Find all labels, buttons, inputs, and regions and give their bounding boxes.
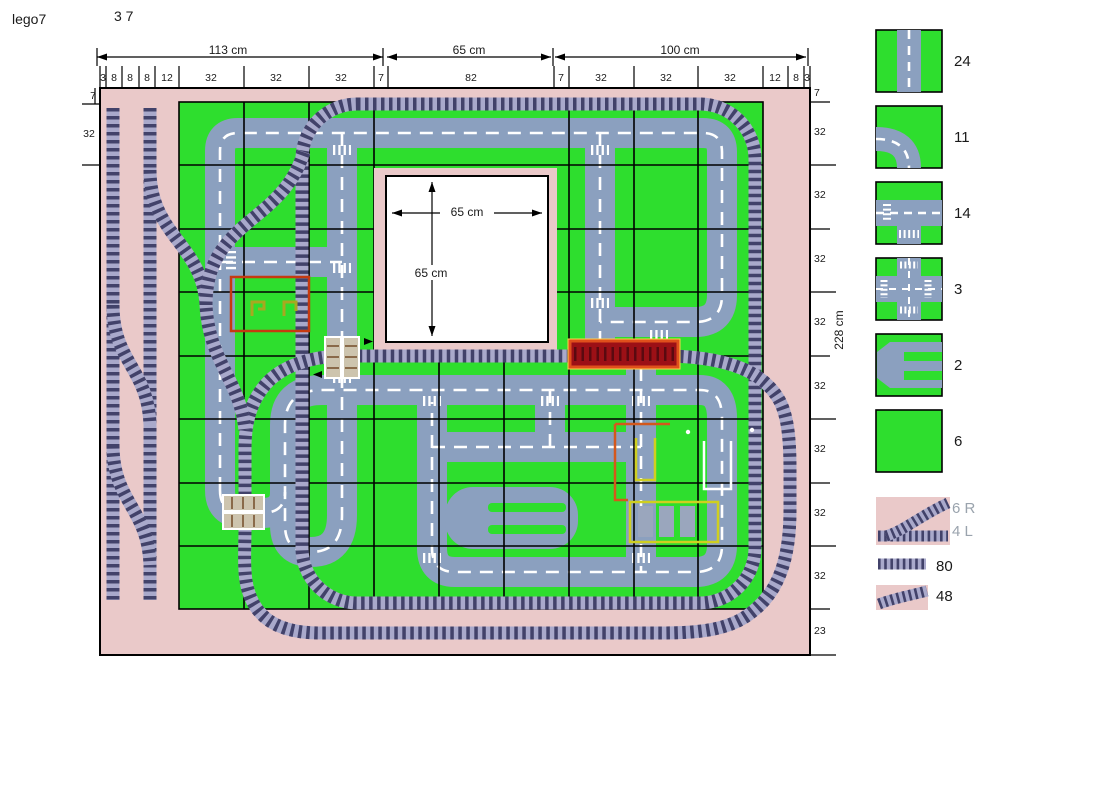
right-tick: 32 [814,507,826,519]
right-tick: 32 [814,126,826,138]
top-tick: 32 [724,72,736,84]
legend-road-straight-icon [876,30,942,92]
legend-count-switch-left: 4 L [952,523,973,540]
legend: 24 11 14 3 [876,30,976,610]
top-tick: 8 [111,72,117,84]
dim-square-width: 65 cm [451,205,484,219]
legend-road-parking-icon [876,334,942,396]
parking-lot-large [445,487,578,549]
top-tick: 7 [558,72,564,84]
legend-road-tjunction-icon [876,182,942,244]
top-ruler: 3 8 8 8 12 32 32 32 7 82 7 32 32 32 12 8… [100,66,810,87]
legend-count-straight-track: 80 [936,558,953,575]
layout-plan-page: lego7 3 7 113 cm 65 cm 100 cm 3 8 8 8 12… [0,0,1100,800]
top-tick: 32 [660,72,672,84]
dim-square-height: 65 cm [415,266,448,280]
dim-113cm: 113 cm [209,43,247,57]
legend-count-green-plate: 6 [954,433,962,450]
legend-track-switch-icon [876,497,950,545]
top-tick: 32 [595,72,607,84]
right-tick: 32 [814,189,826,201]
right-ruler: 7 32 32 32 32 32 32 32 32 23 228 cm [810,87,846,655]
legend-green-plate-icon [876,410,942,472]
top-tick: 32 [205,72,217,84]
top-tick: 8 [144,72,150,84]
top-tick: 32 [270,72,282,84]
top-tick: 82 [465,72,477,84]
top-tick: 32 [335,72,347,84]
top-tick: 3 [804,72,810,84]
left-tick: 7 [90,90,96,102]
top-tick: 8 [793,72,799,84]
page-title: lego7 [12,11,46,27]
right-tick: 32 [814,443,826,455]
center-opening: 65 cm 65 cm [374,168,557,350]
legend-count-parking: 2 [954,357,962,374]
legend-road-curve-icon [876,106,942,168]
dim-65cm: 65 cm [453,43,486,57]
right-tick: 32 [814,253,826,265]
legend-count-switch-right: 6 R [952,500,976,517]
top-tick: 3 [100,72,106,84]
legend-count-straight-road: 24 [954,53,971,70]
legend-track-curve-icon [876,585,928,610]
legend-count-curve-track: 48 [936,588,953,605]
level-crossing-left [223,495,264,529]
top-tick: 12 [769,72,781,84]
left-tick: 32 [83,128,95,140]
legend-count-crossroad: 3 [954,281,962,298]
top-tick: 8 [127,72,133,84]
right-tick: 32 [814,570,826,582]
dim-228cm: 228 cm [832,310,846,349]
right-tick: 23 [814,625,826,637]
right-tick: 32 [814,316,826,328]
dim-100cm: 100 cm [660,43,699,57]
legend-count-curve-road: 11 [954,129,970,146]
top-tick: 12 [161,72,173,84]
page-number: 3 7 [114,8,134,24]
legend-count-tjunction: 14 [954,205,971,222]
layout-canvas: lego7 3 7 113 cm 65 cm 100 cm 3 8 8 8 12… [0,0,1100,800]
train [569,340,680,369]
top-tick: 7 [378,72,384,84]
legend-road-crossroad-icon [876,258,942,320]
top-dimension-lines: 113 cm 65 cm 100 cm [97,43,808,66]
right-tick: 32 [814,380,826,392]
right-tick: 7 [814,87,820,99]
